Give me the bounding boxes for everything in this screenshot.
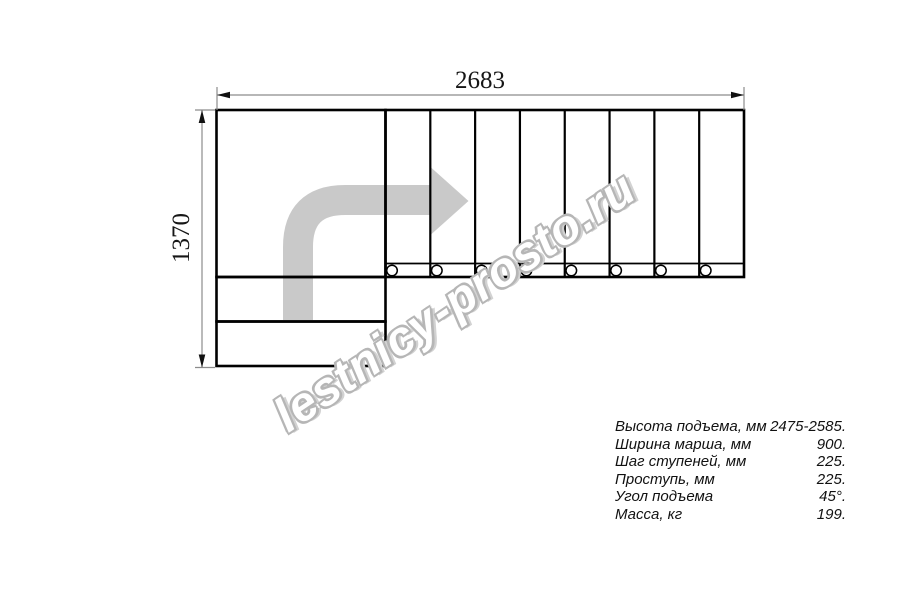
spec-label: Шаг ступеней, мм	[615, 453, 746, 471]
height-dimension-label: 1370	[168, 213, 195, 263]
lower-step-2	[217, 322, 386, 367]
spec-label: Масса, кг	[615, 506, 682, 524]
width-arrow-right-icon	[731, 92, 744, 99]
dimension-lines	[195, 87, 744, 368]
height-arrow-top-icon	[199, 110, 206, 123]
dimension-arrowheads	[199, 92, 744, 368]
spec-value: 225.	[817, 453, 846, 471]
step-mount-circle	[432, 265, 443, 276]
step-mount-circle	[521, 265, 532, 276]
spec-label: Ширина марша, мм	[615, 436, 751, 454]
spec-label: Угол подъема	[615, 488, 713, 506]
step-mount-circles	[387, 265, 711, 276]
spec-row: Угол подъема45°.	[615, 488, 846, 506]
spec-row: Высота подъема, мм2475-2585.	[615, 418, 846, 436]
spec-row: Масса, кг199.	[615, 506, 846, 524]
spec-label: Проступь, мм	[615, 471, 715, 489]
step-divider-lines	[430, 110, 699, 277]
spec-value: 199.	[817, 506, 846, 524]
spec-table: Высота подъема, мм2475-2585.Ширина марша…	[615, 418, 846, 524]
height-arrow-bottom-icon	[199, 355, 206, 368]
spec-row: Ширина марша, мм900.	[615, 436, 846, 454]
direction-arrow-shaft	[298, 200, 432, 320]
width-arrow-left-icon	[217, 92, 230, 99]
spec-value: 225.	[817, 471, 846, 489]
direction-arrow-head	[431, 168, 469, 235]
spec-value: 900.	[817, 436, 846, 454]
step-mount-circle	[656, 265, 667, 276]
spec-row: Проступь, мм225.	[615, 471, 846, 489]
step-mount-circle	[476, 265, 487, 276]
step-mount-circle	[387, 265, 398, 276]
step-mount-circle	[611, 265, 622, 276]
spec-value: 45°.	[819, 488, 846, 506]
spec-label: Высота подъема, мм	[615, 418, 767, 436]
step-mount-circle	[700, 265, 711, 276]
direction-arrow	[298, 168, 469, 321]
spec-row: Шаг ступеней, мм225.	[615, 453, 846, 471]
spec-value: 2475-2585.	[770, 418, 846, 436]
width-dimension-label: 2683	[455, 67, 505, 94]
step-mount-circle	[566, 265, 577, 276]
stair-plan-page: 2683 1370 lestnicy-prosto.ru Высота подъ…	[0, 0, 900, 600]
